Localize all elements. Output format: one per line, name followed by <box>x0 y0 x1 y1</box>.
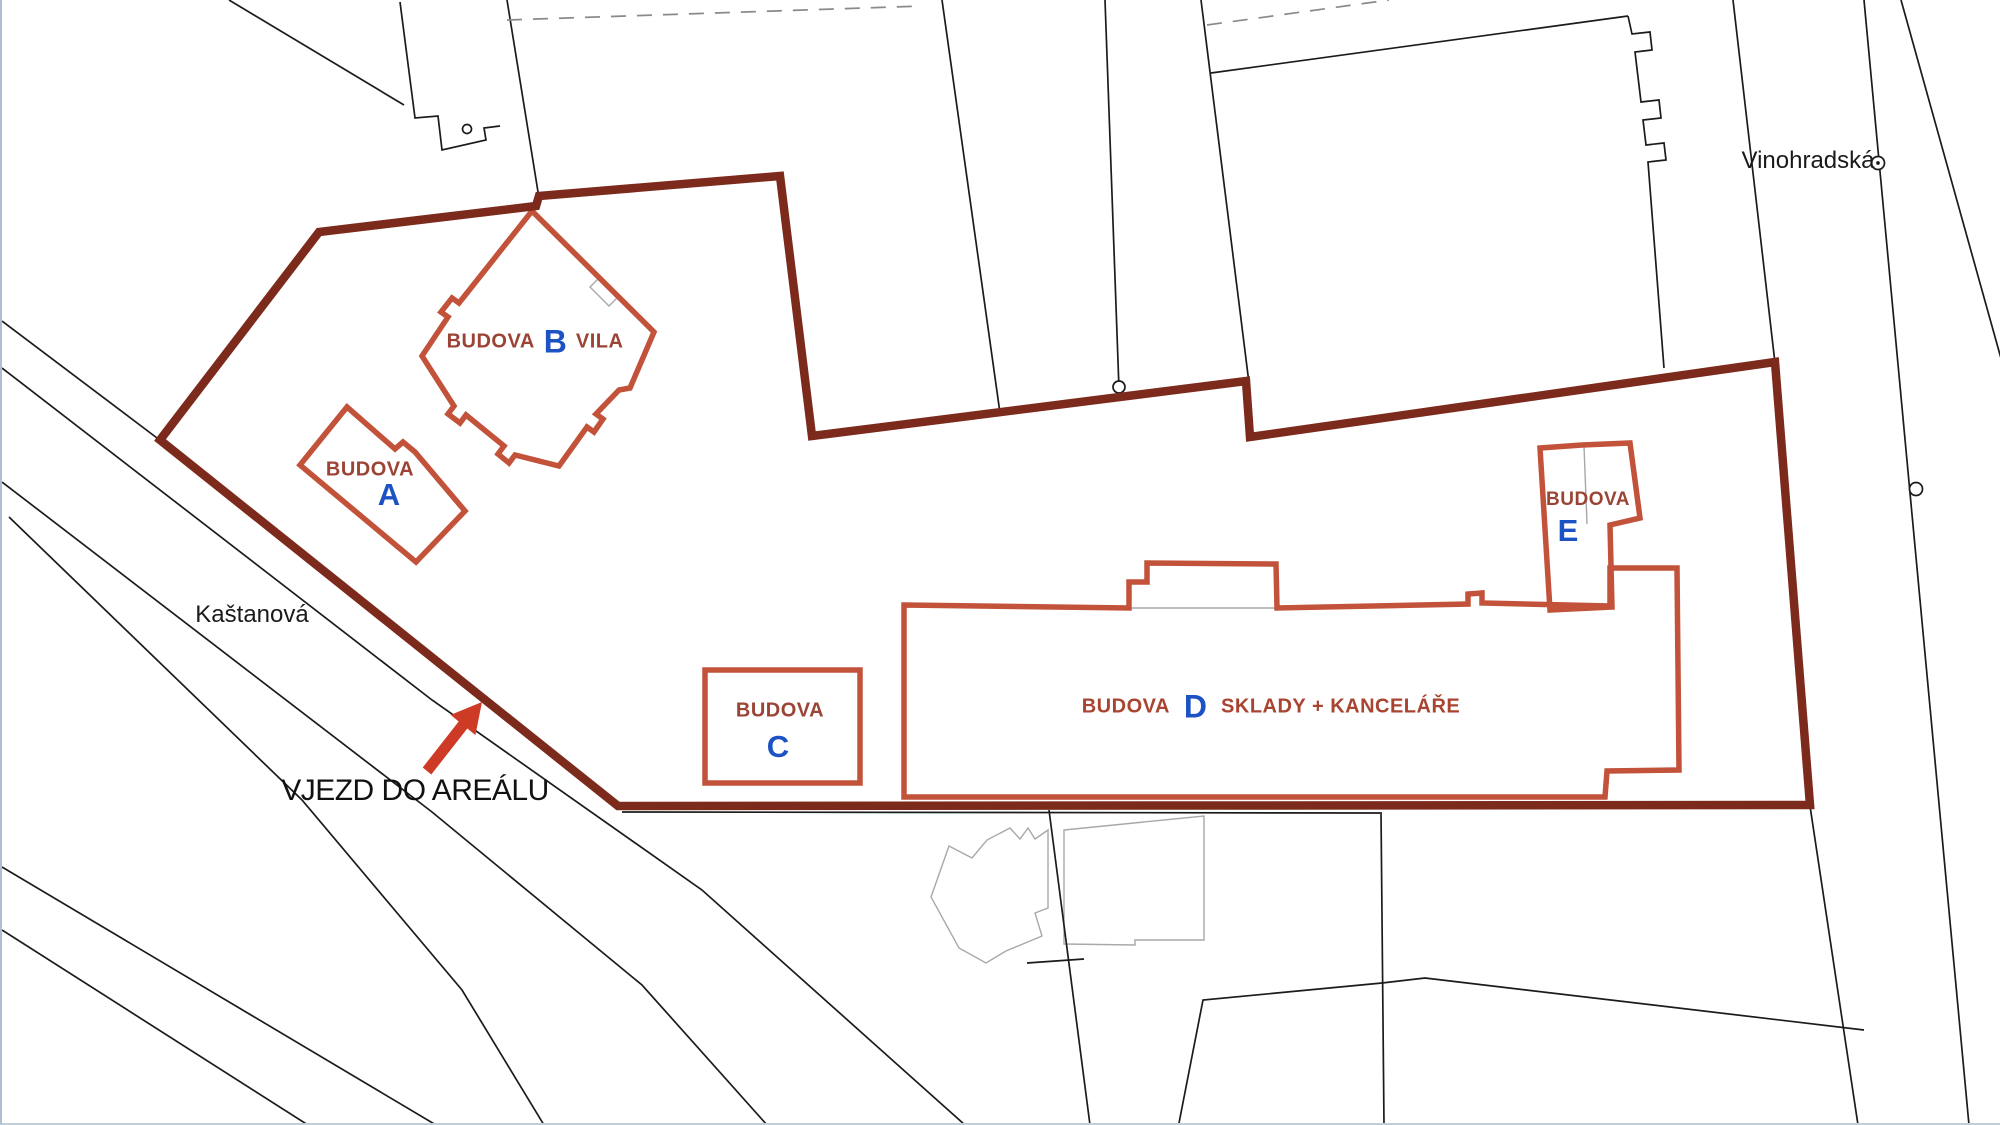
entrance-annotation: VJEZD DO AREÁLU <box>281 774 549 808</box>
building-b-letter: B <box>544 324 567 361</box>
building-c-letter: C <box>767 729 789 765</box>
building-b-suffix: VILA <box>576 331 624 354</box>
building-d-label: BUDOVA D SKLADY + KANCELÁŘE <box>1082 689 1461 726</box>
building-b-prefix: BUDOVA <box>447 331 535 354</box>
site-plan-page: BUDOVA B VILA BUDOVA A BUDOVA C BUDOVA D… <box>0 0 2000 1125</box>
street-label-kastanova: Kaštanová <box>195 601 308 629</box>
building-b-label: BUDOVA B VILA <box>447 324 624 361</box>
gray-parcel-lines <box>590 277 1587 963</box>
building-d-prefix: BUDOVA <box>1082 696 1170 719</box>
entrance-arrow <box>423 702 482 775</box>
building-a-prefix: BUDOVA <box>326 459 414 482</box>
building-d-letter: D <box>1184 689 1207 726</box>
gray-parcel-below-d <box>1064 816 1204 945</box>
cadastral-dashed-line <box>507 0 1389 25</box>
building-e-outline <box>1540 443 1640 610</box>
building-d-suffix: SKLADY + KANCELÁŘE <box>1221 696 1460 719</box>
building-e-prefix: BUDOVA <box>1546 489 1630 511</box>
parcel-lines <box>2 0 2000 1125</box>
irregular-outline <box>931 828 1048 963</box>
building-d-outline <box>904 563 1679 797</box>
street-label-vinohradska: Vinohradská <box>1742 147 1875 175</box>
building-c-prefix: BUDOVA <box>736 700 824 723</box>
building-e-letter: E <box>1558 513 1579 549</box>
site-plan-map <box>2 0 2000 1125</box>
building-c-outline <box>705 670 860 783</box>
building-a-letter: A <box>378 477 400 513</box>
street-lines-kastanova <box>2 321 157 438</box>
